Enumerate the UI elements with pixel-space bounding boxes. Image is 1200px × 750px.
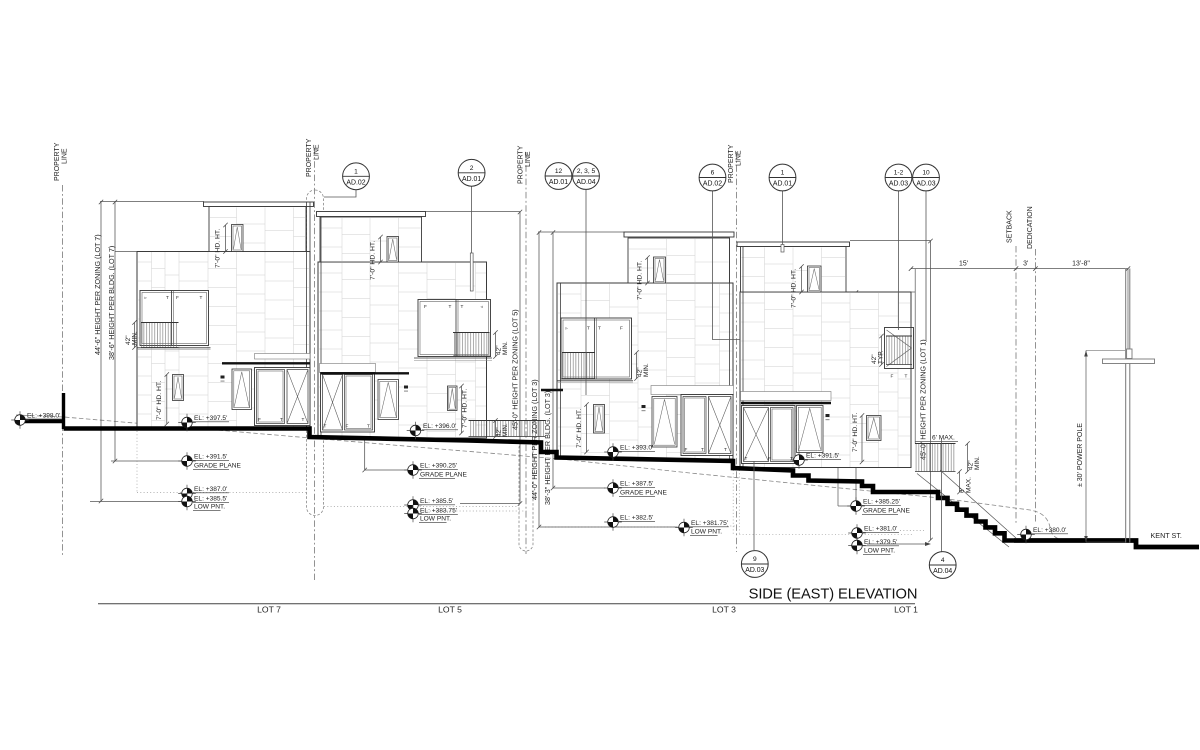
svg-text:7'-0" HD. HT.: 7'-0" HD. HT. [637,261,644,300]
svg-text:LOT 1: LOT 1 [894,605,918,615]
svg-text:PROPERTY: PROPERTY [54,142,61,181]
svg-text:LOT 3: LOT 3 [712,605,736,615]
svg-text:AD.04: AD.04 [576,179,595,186]
svg-text:AD.01: AD.01 [773,181,792,188]
svg-text:AD.04: AD.04 [933,568,952,575]
svg-text:3': 3' [1023,261,1028,268]
svg-text:LOT 5: LOT 5 [438,605,462,615]
svg-text:AD.03: AD.03 [889,181,908,188]
svg-text:9: 9 [753,556,757,563]
svg-text:T: T [324,424,327,429]
svg-text:F: F [176,295,179,300]
svg-text:GRADE PLANE: GRADE PLANE [420,472,468,479]
svg-text:T: T [200,295,203,300]
svg-text:SETBACK: SETBACK [1007,210,1014,243]
svg-text:F: F [424,304,427,309]
svg-text:38'-3" HEIGHT PER BLDG. (LOT 3: 38'-3" HEIGHT PER BLDG. (LOT 3) [543,391,552,505]
svg-text:EL: +381.0': EL: +381.0' [864,526,897,533]
svg-text:F: F [768,456,771,461]
svg-text:EL: +398.0': EL: +398.0' [27,413,60,420]
svg-text:LINE: LINE [314,144,321,160]
svg-text:15': 15' [959,261,968,268]
svg-text:EL: +391.5': EL: +391.5' [194,454,227,461]
svg-text:13’-8": 13’-8" [1072,261,1090,268]
svg-text:EL: +385.5': EL: +385.5' [194,496,227,503]
svg-text:F: F [620,326,623,331]
svg-text:EL: +396.0': EL: +396.0' [423,423,456,430]
svg-text:7'-0" HD. HT.: 7'-0" HD. HT. [462,389,469,428]
svg-text:EL: +391.5': EL: +391.5' [806,453,839,460]
svg-text:45'-0" HEIGHT PER ZONING (LOT: 45'-0" HEIGHT PER ZONING (LOT 1) [919,339,928,460]
svg-text:EL: +382.5': EL: +382.5' [620,515,653,522]
svg-text:GRADE PLANE: GRADE PLANE [194,463,242,470]
svg-text:T: T [598,326,601,331]
svg-text:F: F [891,374,894,379]
svg-text:45'-0" HEIGHT PER ZONING (LOT: 45'-0" HEIGHT PER ZONING (LOT 5) [511,309,520,430]
svg-text:MAX.: MAX. [966,477,973,493]
svg-text:PROPERTY: PROPERTY [518,145,525,184]
svg-text:MIN.: MIN. [974,456,981,470]
svg-text:6' MAX.: 6' MAX. [932,435,955,442]
svg-text:T: T [701,447,704,452]
svg-text:MIN.: MIN. [132,331,139,345]
svg-text:4: 4 [941,557,945,564]
svg-text:T: T [280,417,283,422]
svg-text:T: T [905,374,908,379]
svg-text:LINE: LINE [736,150,743,166]
svg-text:MIN.: MIN. [502,423,509,437]
svg-text:10: 10 [922,170,930,177]
svg-text:AD.02: AD.02 [703,181,722,188]
svg-text:AD.02: AD.02 [346,180,365,187]
svg-text:T: T [449,304,452,309]
svg-text:EL: +387.5': EL: +387.5' [620,481,653,488]
svg-text:44'-6" HEIGHT PER ZONING (LOT: 44'-6" HEIGHT PER ZONING (LOT 7) [93,234,102,355]
svg-text:7'-0" HD. HT.: 7'-0" HD. HT. [852,413,859,452]
svg-text:KENT ST.: KENT ST. [1151,531,1182,540]
svg-text:7'-0" HD. HT.: 7'-0" HD. HT. [156,381,163,420]
svg-text:GRADE PLANE: GRADE PLANE [620,490,668,497]
svg-text:EL: +381.75': EL: +381.75' [691,520,728,527]
svg-text:EL: +385.5': EL: +385.5' [420,498,453,505]
svg-text:T: T [745,456,748,461]
svg-text:F: F [258,417,261,422]
svg-text:T: T [166,295,169,300]
svg-text:PROPERTY: PROPERTY [728,144,735,183]
svg-text:LOW PNT.: LOW PNT. [420,516,451,523]
svg-text:AD.01: AD.01 [549,179,568,186]
svg-text:DEDICATION: DEDICATION [1027,206,1034,249]
svg-text:1-2: 1-2 [894,170,904,177]
svg-text:7'-0" HD. HT.: 7'-0" HD. HT. [576,409,583,448]
svg-text:EL: +397.5': EL: +397.5' [194,415,227,422]
svg-text:AD.03: AD.03 [745,567,764,574]
svg-text:F: F [685,447,688,452]
svg-text:T: T [587,326,590,331]
svg-text:12: 12 [555,168,563,175]
svg-text:PROPERTY: PROPERTY [306,138,313,177]
svg-text:T: T [302,417,305,422]
svg-text:7'-0" HD. HT.: 7'-0" HD. HT. [791,269,798,308]
svg-text:1: 1 [781,170,785,177]
svg-text:MIN.: MIN. [502,341,509,355]
svg-text:T: T [461,304,464,309]
svg-text:± 30' POWER POLE: ± 30' POWER POLE [1077,423,1084,487]
svg-text:F: F [346,424,349,429]
svg-text:7'-0" HD. HT.: 7'-0" HD. HT. [215,229,222,268]
svg-text:EL: +385.25': EL: +385.25' [863,499,900,506]
svg-text:EL: +387.0': EL: +387.0' [194,486,227,493]
svg-text:LINE: LINE [525,151,532,167]
svg-text:2: 2 [470,165,474,172]
svg-text:EL: +380.0': EL: +380.0' [1033,527,1066,534]
svg-text:6: 6 [711,170,715,177]
svg-text:7'-0" HD. HT.: 7'-0" HD. HT. [370,241,377,280]
svg-text:T: T [367,424,370,429]
svg-text:EL: +393.0': EL: +393.0' [620,445,653,452]
svg-text:T: T [724,447,727,452]
svg-text:EL: +379.5': EL: +379.5' [864,539,897,546]
svg-text:EL: +390.25': EL: +390.25' [420,463,457,470]
svg-text:LOT 7: LOT 7 [257,605,281,615]
svg-text:SIDE (EAST) ELEVATION: SIDE (EAST) ELEVATION [749,587,918,603]
svg-text:GRADE PLANE: GRADE PLANE [863,508,911,515]
svg-text:LOW PNT.: LOW PNT. [864,548,895,555]
svg-text:AD.01: AD.01 [462,176,481,183]
svg-text:AD.03: AD.03 [916,181,935,188]
svg-text:TYP.: TYP. [878,350,885,364]
svg-text:LINE: LINE [62,148,69,164]
svg-text:2, 3, 5: 2, 3, 5 [577,168,596,175]
svg-text:44'-0" HEIGHT PER ZONING (LOT: 44'-0" HEIGHT PER ZONING (LOT 3) [530,379,539,500]
svg-text:LOW PNT.: LOW PNT. [691,529,722,536]
svg-text:MIN.: MIN. [643,363,650,377]
svg-text:38'-6" HEIGHT PER BLDG. (LOT 7: 38'-6" HEIGHT PER BLDG. (LOT 7) [107,246,116,360]
svg-text:1: 1 [354,168,358,175]
svg-text:LOW PNT.: LOW PNT. [194,504,225,511]
svg-text:EL: +383.75': EL: +383.75' [420,508,457,515]
